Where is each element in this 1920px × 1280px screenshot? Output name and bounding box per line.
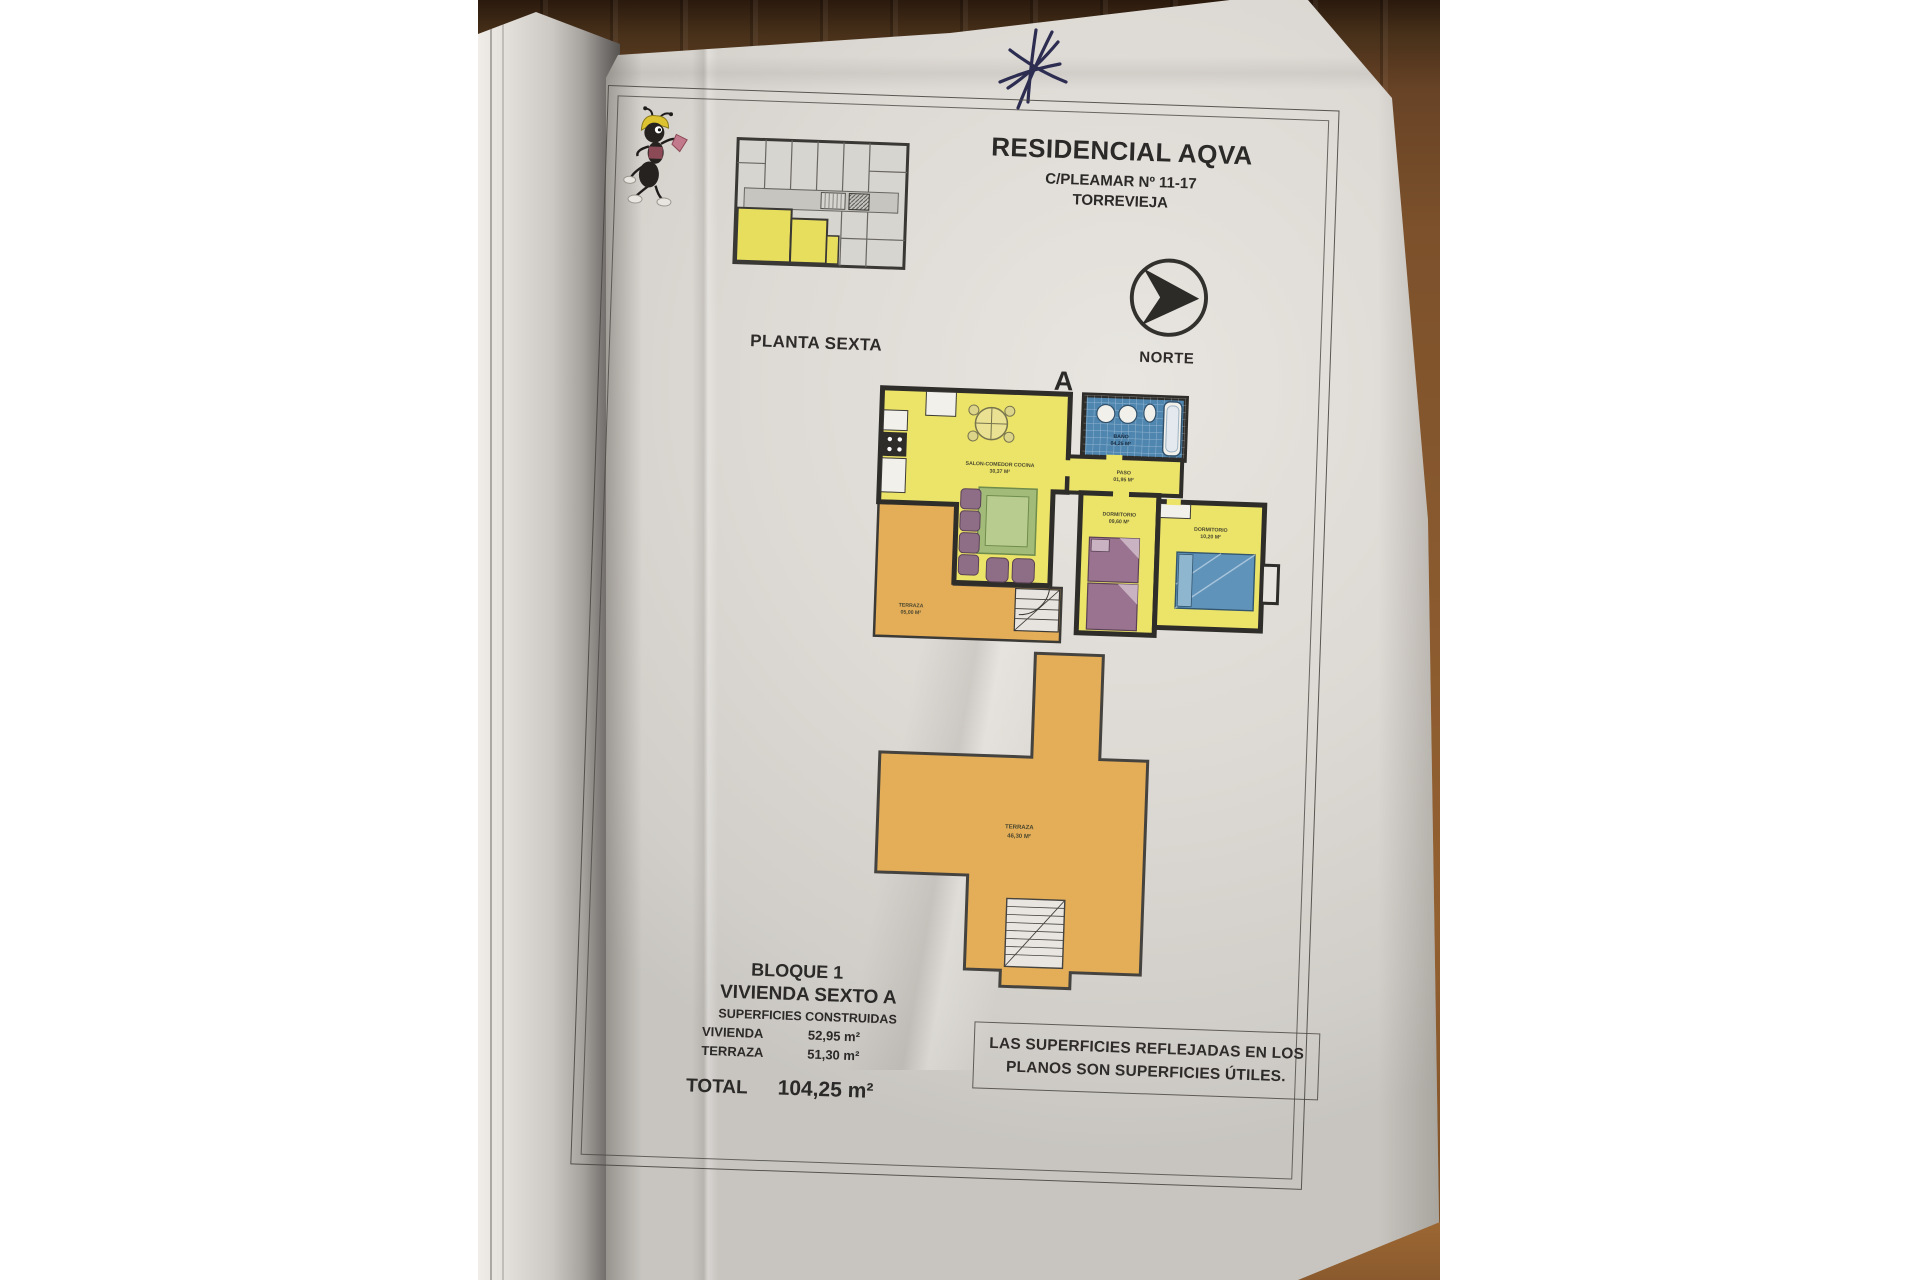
roof-terrace-area: 46,30 M² — [1007, 832, 1031, 840]
ant-mascot-icon — [621, 105, 697, 209]
surface-row-label: VIVIENDA — [688, 1023, 808, 1042]
total-value: 104,25 m² — [777, 1077, 874, 1104]
apartment-floor-plan: SALON-COMEDOR COCINA 30,37 M² BAÑO 04,25… — [861, 373, 1295, 672]
disclaimer-box: LAS SUPERFICIES REFLEJADAS EN LOS PLANOS… — [972, 1021, 1320, 1100]
page-edge-line — [490, 0, 492, 1280]
terrace-label: TERRAZA — [899, 602, 924, 609]
document-photo: PLANTA SEXTA RESIDENCIAL AQVA C/PLEAMAR … — [478, 0, 1440, 1280]
roof-terrace-plan: TERRAZA 46,30 M² — [864, 644, 1181, 999]
plan-border-frame: PLANTA SEXTA RESIDENCIAL AQVA C/PLEAMAR … — [570, 85, 1339, 1190]
hallway-label: PASO — [1117, 470, 1132, 476]
bedroom-2-area: 10,20 M² — [1200, 534, 1221, 541]
project-header: RESIDENCIAL AQVA C/PLEAMAR Nº 11-17 TORR… — [955, 130, 1287, 215]
roof-terrace-label: TERRAZA — [1005, 824, 1035, 831]
page-edge-line — [502, 0, 504, 1280]
hallway-area: 01,95 M² — [1113, 477, 1134, 484]
terrace-area: 05,00 M² — [900, 610, 921, 617]
living-room-area: 30,37 M² — [989, 469, 1010, 476]
north-indicator: NORTE — [1112, 254, 1226, 369]
bedroom-1-area: 09,60 M² — [1109, 519, 1130, 526]
bedroom-1-label: DORMITORIO — [1102, 512, 1136, 519]
surface-summary: BLOQUE 1 VIVIENDA SEXTO A SUPERFICIES CO… — [686, 957, 959, 1106]
bathroom-area: 04,25 M² — [1110, 441, 1131, 448]
north-arrow-icon — [1125, 254, 1212, 341]
bedroom-2-label: DORMITORIO — [1194, 527, 1228, 534]
surface-row-value: 51,30 m² — [807, 1047, 860, 1064]
surface-row-value: 52,95 m² — [808, 1028, 861, 1045]
bathroom-label: BAÑO — [1113, 433, 1129, 441]
floor-key-plan — [729, 130, 914, 276]
total-label: TOTAL — [686, 1075, 748, 1099]
surface-row-label: TERRAZA — [687, 1042, 807, 1061]
